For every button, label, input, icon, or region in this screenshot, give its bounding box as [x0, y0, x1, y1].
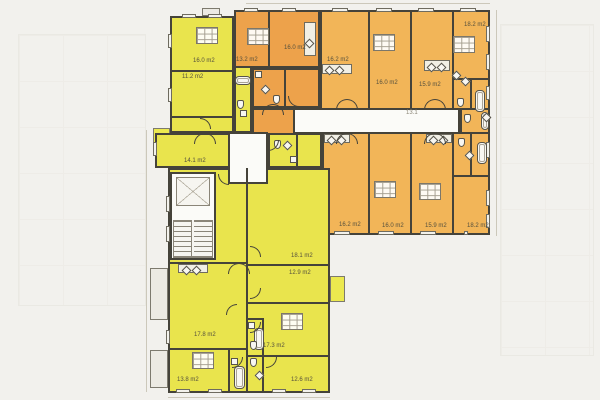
lobby	[228, 132, 268, 184]
apartment-info-stamp	[196, 27, 218, 44]
room-area-label: 18.2 m2	[464, 22, 486, 28]
balcony-right-bump	[330, 276, 345, 302]
room-area-label: 16.0 m2	[382, 223, 404, 229]
room-area-label: 18.2 m2	[467, 223, 489, 229]
wall-segment	[410, 10, 412, 110]
stair-divider	[191, 220, 194, 256]
ghost-plan-left	[18, 34, 146, 306]
room-area-label: 13.2 m2	[236, 57, 258, 63]
room-area-label: 16.0 m2	[284, 45, 306, 51]
window	[302, 389, 316, 393]
room-area-label: 12.6 m2	[291, 377, 313, 383]
window	[464, 231, 468, 235]
window	[208, 14, 222, 18]
orange-rooms-bottom-row	[322, 132, 490, 235]
dimension-line-top	[246, 3, 490, 4]
wall-segment	[246, 318, 262, 320]
bathtub-icon	[235, 76, 251, 85]
toilet-icon	[458, 138, 465, 147]
wall-segment	[368, 10, 370, 110]
window	[420, 231, 436, 235]
room-area-label: 11.2 m2	[182, 74, 203, 80]
wall-segment	[246, 264, 330, 266]
dimension-line-right	[496, 10, 497, 236]
window	[153, 142, 157, 156]
wall-segment	[452, 10, 454, 110]
window	[282, 8, 296, 12]
toilet-icon	[250, 358, 257, 367]
room-area-label: 16.2 m2	[339, 222, 361, 228]
apartment-info-stamp	[373, 34, 395, 51]
dimension-line-left	[146, 130, 147, 392]
elevator-shaft-icon	[176, 177, 210, 206]
toilet-icon	[464, 114, 471, 123]
dimension-line-bottom	[168, 397, 330, 398]
bathtub-icon	[477, 142, 487, 164]
window	[460, 8, 476, 12]
bathtub-icon	[234, 366, 245, 389]
window	[486, 86, 490, 100]
wall-segment	[452, 132, 454, 235]
wall-segment	[170, 70, 234, 72]
floor-plan: 13.1 16.0 m211.2 m214.1 m213.2 m216.0 m2…	[0, 0, 600, 400]
balcony-left-lower	[150, 350, 168, 388]
room-area-label: 12.9 m2	[289, 270, 311, 276]
window	[168, 88, 172, 102]
window	[176, 389, 190, 393]
wall-segment	[228, 348, 230, 393]
window	[376, 8, 392, 12]
washer-icon	[290, 156, 297, 163]
apartment-info-stamp	[419, 183, 441, 200]
wall-segment	[410, 132, 412, 235]
apartment-info-stamp	[374, 181, 396, 198]
wall-segment	[284, 68, 286, 108]
room-area-label: 16.2 m2	[327, 57, 349, 63]
wall-segment	[246, 168, 248, 393]
window	[244, 8, 258, 12]
window	[486, 26, 490, 42]
washer-icon	[255, 71, 262, 78]
staircase	[170, 172, 216, 260]
apartment-info-stamp	[192, 352, 214, 369]
ghost-plan-right	[500, 24, 594, 356]
window	[332, 8, 348, 12]
toilet-icon	[237, 100, 244, 109]
washer-icon	[240, 110, 247, 117]
window	[486, 190, 490, 206]
room-area-label: 16.0 m2	[376, 80, 398, 86]
corridor-area-label: 13.1	[406, 110, 418, 116]
wall-segment	[246, 302, 330, 304]
window	[168, 34, 172, 48]
room-area-label: 15.9 m2	[419, 82, 441, 88]
window	[208, 389, 222, 393]
apartment-info-stamp	[281, 313, 303, 330]
window	[182, 14, 196, 18]
balcony-left-mid	[150, 268, 168, 320]
wall-segment	[368, 132, 370, 235]
room-area-label: 16.0 m2	[193, 58, 215, 64]
window	[486, 54, 490, 70]
window	[166, 330, 170, 344]
room-area-label: 13.8 m2	[177, 377, 199, 383]
apartment-info-stamp	[453, 36, 475, 53]
apartment-info-stamp	[247, 28, 269, 45]
room-area-label: 14.1 m2	[184, 158, 206, 164]
room-area-label: 18.1 m2	[291, 253, 313, 259]
window	[418, 8, 434, 12]
room-area-label: 15.9 m2	[425, 223, 447, 229]
window	[334, 231, 350, 235]
room-area-label: 17.8 m2	[194, 332, 216, 338]
bathtub-icon	[475, 90, 485, 112]
window	[378, 231, 394, 235]
toilet-icon	[457, 98, 464, 107]
wall-segment	[470, 78, 472, 108]
window	[272, 389, 286, 393]
room-area-label: 17.3 m2	[263, 343, 285, 349]
toilet-icon	[250, 341, 257, 350]
wall-segment	[246, 355, 330, 357]
corridor	[295, 108, 460, 134]
toilet-icon	[273, 95, 280, 104]
wall-segment	[168, 348, 246, 350]
